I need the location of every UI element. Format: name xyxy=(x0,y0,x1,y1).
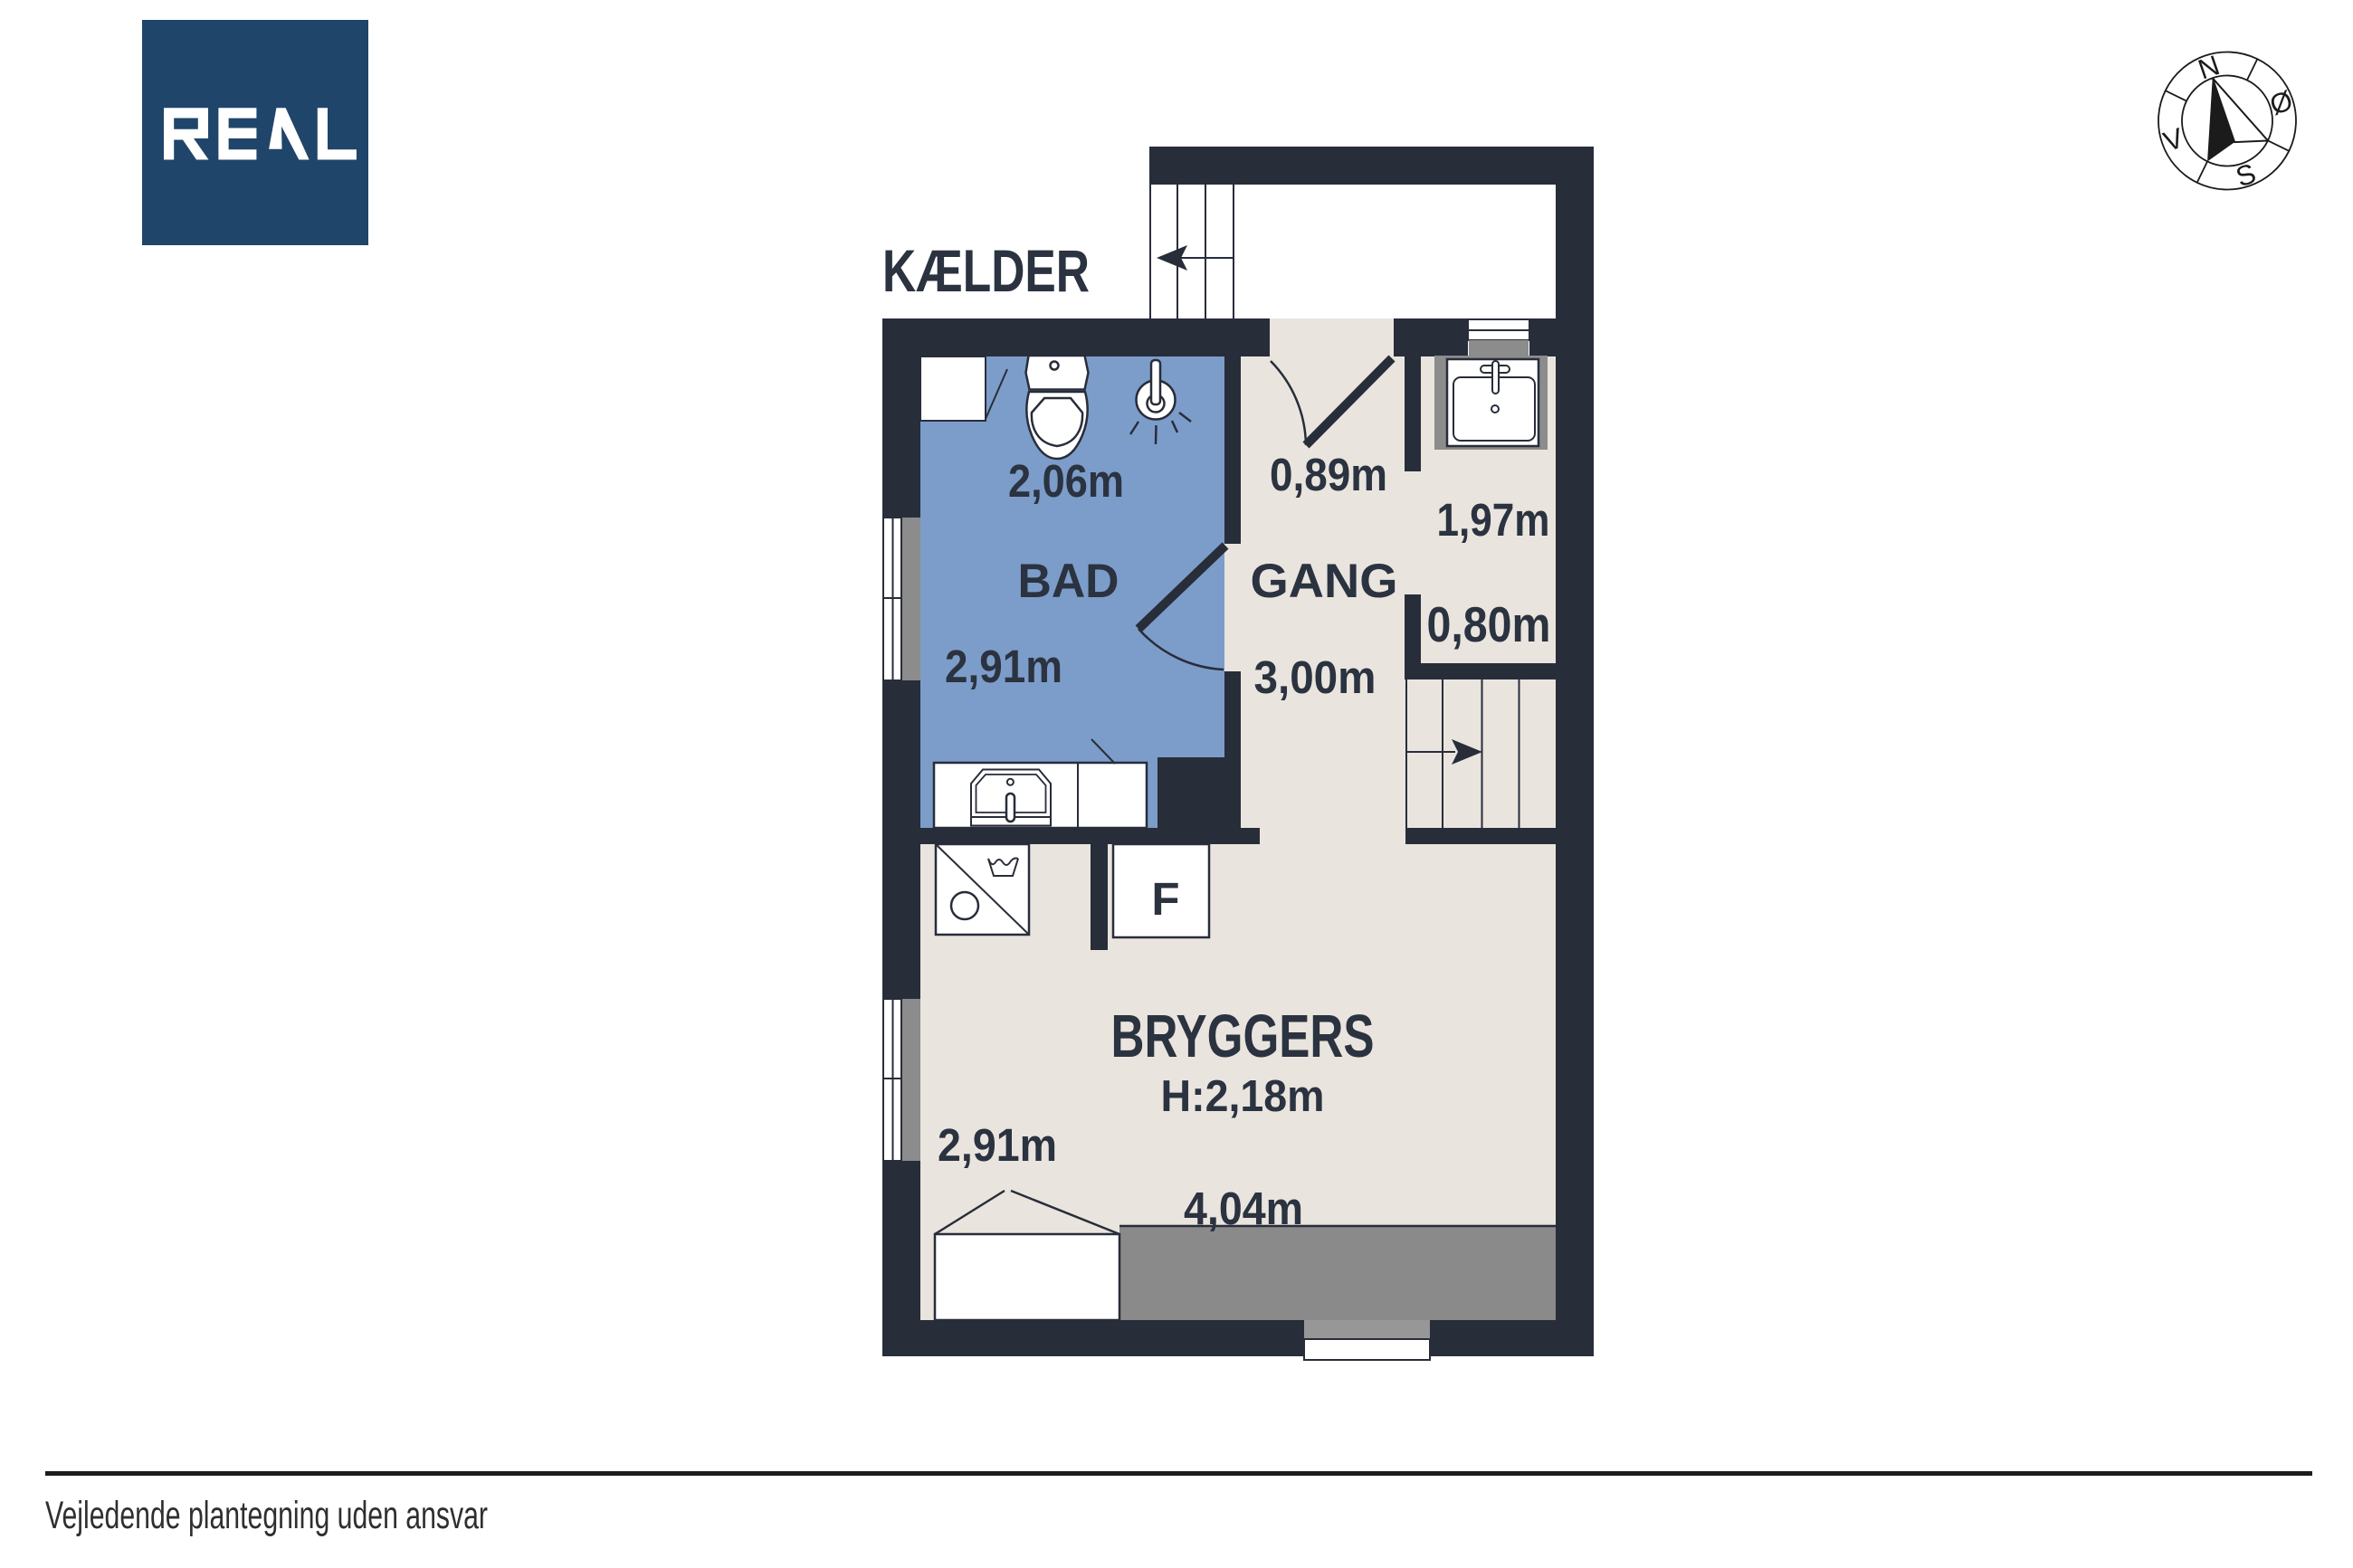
svg-text:1,97m: 1,97m xyxy=(1437,494,1550,546)
svg-text:Vejledende plantegning uden an: Vejledende plantegning uden ansvar xyxy=(45,1494,488,1537)
svg-text:H:2,18m: H:2,18m xyxy=(1161,1072,1325,1121)
svg-text:0,80m: 0,80m xyxy=(1427,596,1551,652)
svg-text:2,06m: 2,06m xyxy=(1008,455,1124,507)
svg-text:4,04m: 4,04m xyxy=(1184,1183,1303,1234)
svg-text:KÆLDER: KÆLDER xyxy=(882,237,1090,304)
svg-text:3,00m: 3,00m xyxy=(1254,651,1377,703)
svg-text:GANG: GANG xyxy=(1251,555,1398,608)
svg-text:2,91m: 2,91m xyxy=(945,641,1062,692)
svg-text:F: F xyxy=(1151,873,1179,925)
svg-text:BAD: BAD xyxy=(1018,555,1119,608)
svg-text:0,89m: 0,89m xyxy=(1270,449,1387,500)
svg-text:2,91m: 2,91m xyxy=(938,1119,1057,1171)
svg-text:BRYGGERS: BRYGGERS xyxy=(1111,1003,1375,1070)
